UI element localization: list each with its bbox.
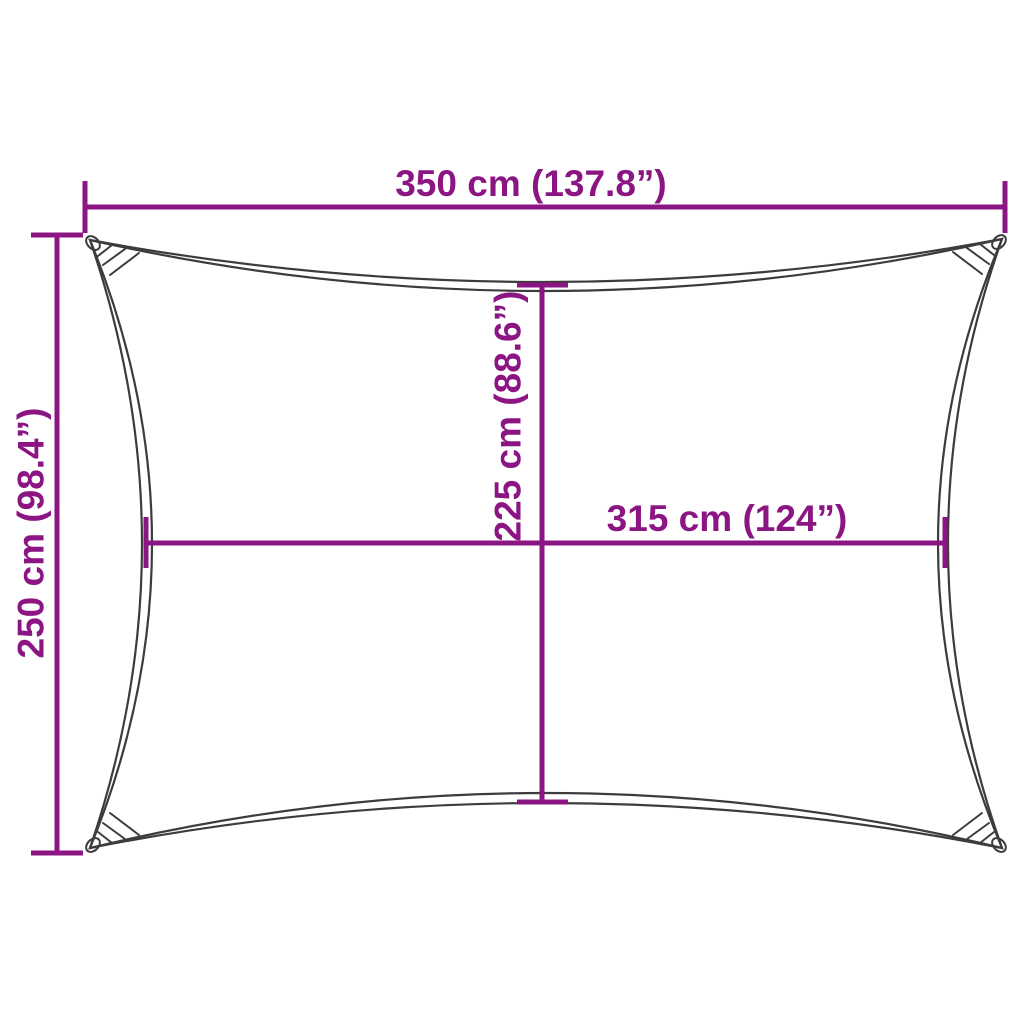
dimension-label-left-height: 250 cm (98.4”) [11,408,52,659]
dimension-top-width: 350 cm (137.8”) [85,163,1005,233]
diagram-canvas: 350 cm (137.8”) 250 cm (98.4”) 225 cm (8… [0,0,1024,1024]
grommet-ring-icon [989,835,1008,854]
dimension-left-height: 250 cm (98.4”) [11,235,84,853]
dimension-label-middle-width: 315 cm (124”) [607,498,848,539]
dimension-label-top-width: 350 cm (137.8”) [395,163,667,204]
dimension-diagram: 350 cm (137.8”) 250 cm (98.4”) 225 cm (8… [0,0,1024,1024]
dimension-label-center-height: 225 cm (88.6”) [488,291,529,542]
dimension-middle-width: 315 cm (124”) [146,498,945,568]
grommet-ring-icon [83,233,102,252]
grommet-ring-icon [989,232,1008,251]
grommet-ring-icon [83,835,102,854]
